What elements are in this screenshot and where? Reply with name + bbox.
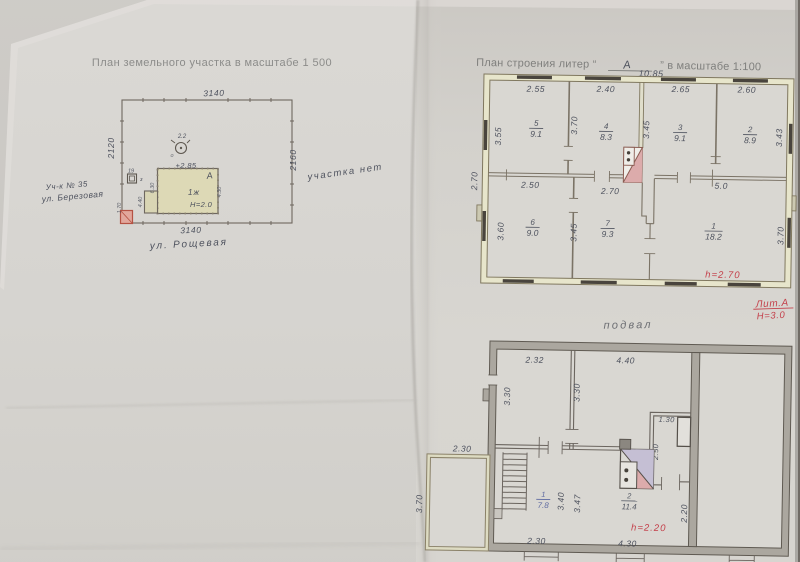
svg-text:4.30: 4.30 [217, 186, 223, 198]
svg-text:1.30: 1.30 [658, 415, 675, 424]
svg-text:4.30: 4.30 [618, 538, 637, 548]
svg-text:19: 19 [128, 169, 134, 175]
svg-text:3.60: 3.60 [495, 222, 505, 241]
svg-text:3.55: 3.55 [493, 127, 503, 146]
svg-text:4: 4 [604, 122, 609, 131]
svg-text:3.30: 3.30 [571, 383, 581, 402]
svg-text:з: з [139, 177, 143, 183]
svg-text:4.40: 4.40 [138, 196, 144, 208]
svg-text:6.30: 6.30 [150, 182, 156, 194]
svg-text:3.30: 3.30 [502, 387, 512, 406]
svg-text:1.70: 1.70 [117, 202, 123, 214]
svg-text:1: 1 [711, 222, 716, 231]
svg-text:3.40: 3.40 [556, 492, 566, 511]
svg-text:2120: 2120 [106, 137, 116, 159]
svg-text:1: 1 [541, 490, 545, 499]
svg-text:8.3: 8.3 [600, 132, 612, 142]
svg-text:3140: 3140 [203, 88, 225, 99]
svg-text:План строения литер “: План строения литер “ [476, 57, 597, 71]
svg-text:1ж: 1ж [188, 188, 200, 197]
svg-text:3.70: 3.70 [775, 226, 785, 245]
svg-text:5.0: 5.0 [715, 181, 728, 191]
svg-text:3.45: 3.45 [641, 120, 651, 139]
svg-text:2.55: 2.55 [525, 84, 545, 94]
svg-text:9.0: 9.0 [527, 228, 539, 238]
svg-text:2.60: 2.60 [736, 84, 756, 94]
svg-text:Н=2.0: Н=2.0 [190, 200, 213, 209]
svg-text:2.65: 2.65 [670, 84, 690, 94]
svg-text:2: 2 [747, 125, 753, 134]
svg-text:2.30: 2.30 [526, 536, 546, 546]
svg-text:18.2: 18.2 [705, 231, 722, 241]
svg-text:3: 3 [678, 123, 683, 132]
svg-text:h=2.70: h=2.70 [705, 270, 740, 282]
svg-text:А: А [205, 170, 213, 181]
svg-text:11.4: 11.4 [622, 502, 638, 511]
svg-text:2.70: 2.70 [469, 172, 479, 192]
svg-text:9.1: 9.1 [674, 133, 686, 143]
svg-text:2.32: 2.32 [524, 355, 544, 365]
svg-text:2.20: 2.20 [679, 504, 689, 524]
svg-text:о: о [170, 153, 173, 159]
svg-text:h=2.20: h=2.20 [631, 522, 667, 534]
svg-text:2.30: 2.30 [452, 443, 472, 453]
svg-text:2160: 2160 [288, 149, 298, 171]
svg-text:Н=3.0: Н=3.0 [756, 310, 785, 323]
svg-text:4.40: 4.40 [616, 355, 635, 365]
svg-text:9.3: 9.3 [602, 229, 614, 239]
svg-text:5: 5 [534, 119, 539, 128]
svg-text:3140: 3140 [180, 225, 202, 236]
svg-text:7: 7 [605, 219, 610, 228]
svg-text:2.70: 2.70 [600, 186, 620, 196]
svg-text:2.50: 2.50 [520, 180, 540, 190]
svg-text:6: 6 [530, 218, 535, 227]
svg-text:3.45: 3.45 [568, 223, 578, 242]
svg-text:2.2: 2.2 [177, 134, 187, 140]
svg-text:3.70: 3.70 [569, 116, 579, 135]
svg-text:подвал: подвал [604, 319, 653, 332]
svg-text:” в масштабе 1:100: ” в масштабе 1:100 [660, 60, 761, 74]
svg-text:7.8: 7.8 [537, 501, 549, 510]
svg-text:+2.85: +2.85 [176, 161, 197, 170]
svg-text:9.1: 9.1 [530, 129, 542, 139]
svg-text:3.43: 3.43 [774, 128, 784, 147]
svg-text:3.70: 3.70 [414, 494, 424, 513]
svg-text:2.40: 2.40 [595, 84, 615, 94]
svg-text:План земельного участка в масш: План земельного участка в масштабе 1 500 [92, 57, 332, 69]
svg-text:А: А [622, 59, 631, 72]
svg-text:8.9: 8.9 [744, 135, 756, 145]
svg-text:3.47: 3.47 [572, 494, 582, 513]
